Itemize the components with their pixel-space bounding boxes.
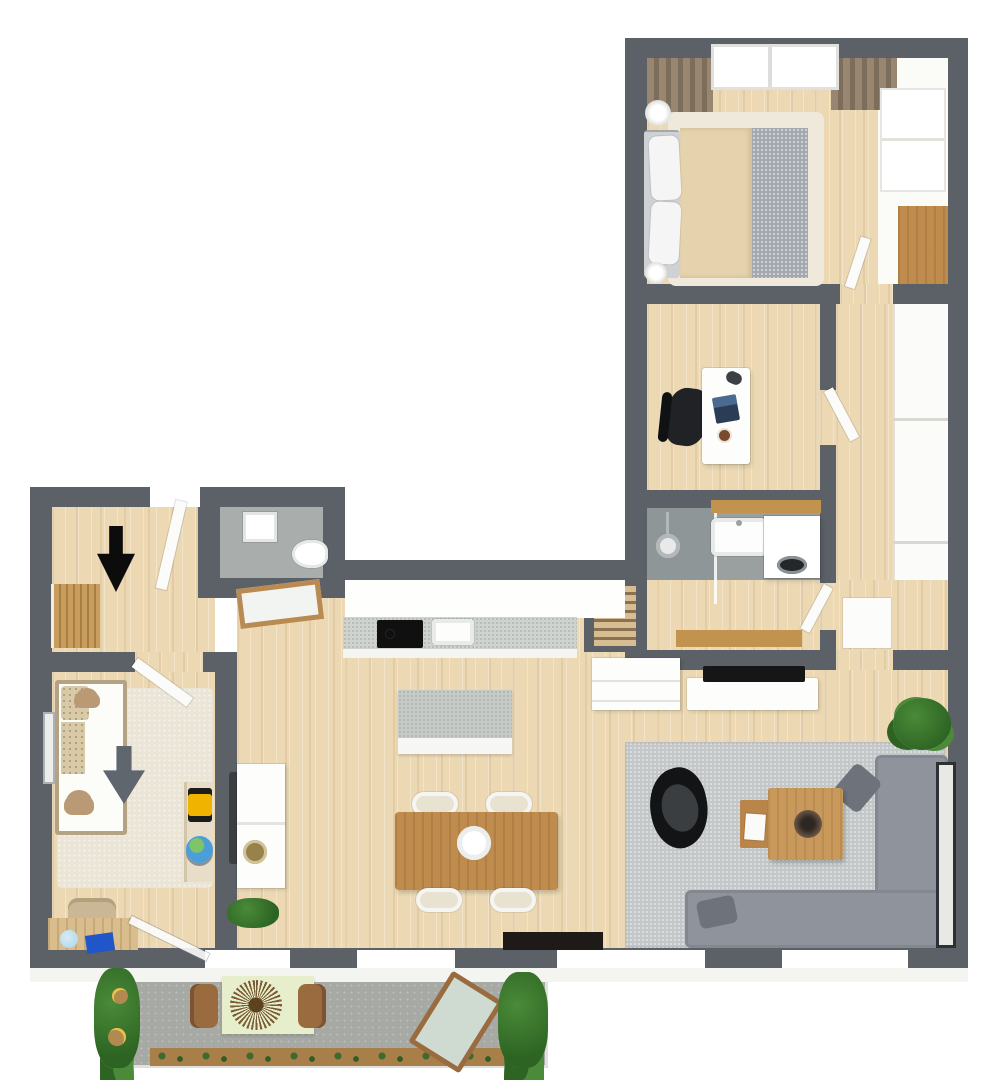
shower-arm [666,512,669,536]
toy-truck [188,788,212,822]
building-outer-face [30,968,968,982]
wc-washbasin [243,512,277,542]
kitchen-island [398,690,512,738]
dining-chair [416,888,462,912]
kids-desk-lamp [60,930,78,948]
kids-bed-blanket [61,722,85,774]
outdoor-chair [298,984,326,1028]
shower-head [656,534,680,558]
globe [186,836,213,863]
bedroom-window [711,44,839,90]
balcony-door-opening [205,950,290,968]
flower-pot [112,988,128,1004]
bed-pillow [648,201,681,264]
sideboard [237,764,285,888]
toilet [292,540,328,568]
tv [703,666,805,682]
wall-bath-right [820,630,836,650]
teddy-bear [66,790,92,814]
kitchen-sink [432,619,474,645]
window-opening [357,950,455,968]
bed-knit-blanket [752,128,808,278]
planter-boxes [150,1048,538,1066]
plate [457,826,491,860]
bedroom-wardrobe [880,88,946,192]
bed-pillow [648,135,681,200]
closet-divider [893,418,948,421]
door-gap-floor [836,650,893,670]
media-bench [503,932,603,950]
tv-console [687,678,818,710]
teddy-bear [76,688,98,708]
corridor-cabinet [843,598,891,648]
sunburst-centerpiece [230,980,282,1030]
bedside-lamp [645,262,667,284]
hall-dresser [592,658,680,710]
wall-bath-bottom [893,650,968,670]
window-opening [782,950,908,968]
kitchen-wall-face [345,580,625,618]
wall-bedroom-bottom [625,284,840,304]
book [744,813,766,840]
bed-duvet [680,128,754,278]
bath-wood-shelf [711,500,821,513]
leaning-picture-frame [936,762,956,948]
table-bowl [794,810,822,838]
laptop [712,394,740,424]
washing-machine-door [777,556,807,574]
dining-chair [490,888,536,912]
flower-pot [108,1028,126,1046]
closet-divider [893,541,948,544]
wall-wc-left [198,507,220,578]
wall-bedroom-bottom [893,284,948,304]
wall-kitchen-top [323,560,647,580]
wall-picture-frame [43,712,55,784]
bath-bench [676,630,802,647]
mug [719,430,730,441]
bedroom-desk [898,206,948,284]
wall-hall-bottom [30,652,135,672]
living-plant [893,698,951,750]
gold-bowl [243,840,267,864]
basin-faucet [736,520,742,526]
blue-mat [85,932,115,954]
floor-plan-canvas [0,0,1004,1080]
climbing-plant-left [94,968,140,1068]
climbing-plant-right [498,972,548,1068]
wall-bath-right [820,508,836,583]
wall-hall-bottom [203,652,215,672]
coat-rack [54,584,100,648]
balcony-door-opening [557,950,705,968]
bedside-lamp [645,100,671,126]
outdoor-chair [190,984,218,1028]
dining-plant [227,898,279,928]
kitchen-counter-front [343,649,577,658]
cooktop [377,620,423,648]
wall-hall-top [200,487,345,507]
wall-office-left [625,304,647,508]
wall-office-right [820,304,836,390]
